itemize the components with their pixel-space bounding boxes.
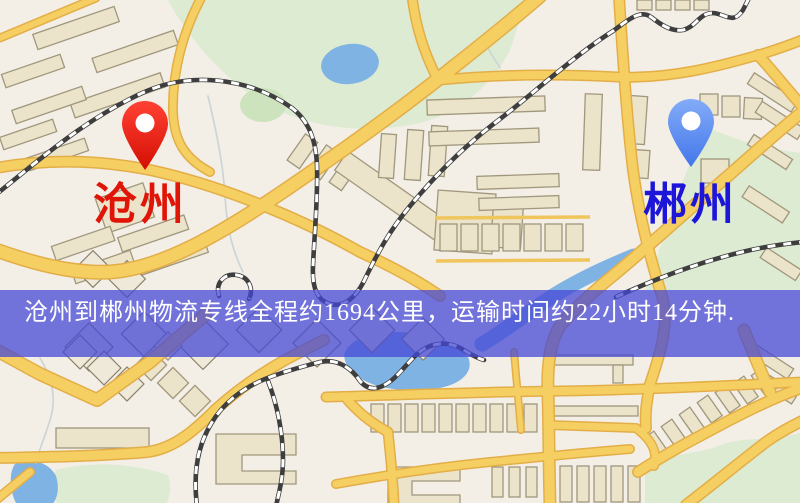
destination-city-label: 郴州 (643, 180, 737, 229)
route-info-banner: 沧州到郴州物流专线全程约1694公里，运输时间约22小时14分钟. (0, 290, 800, 357)
route-info-text: 沧州到郴州物流专线全程约1694公里，运输时间约22小时14分钟. (24, 299, 735, 328)
map-screenshot: 沧州 郴州 沧州到郴州物流专线全程约1694公里，运输时间约22小时14分钟. (0, 0, 800, 503)
red-pin-hole (136, 114, 155, 133)
origin-city-label: 沧州 (93, 180, 187, 229)
blue-pin-hole (682, 112, 701, 131)
map-canvas[interactable]: 沧州 郴州 (0, 0, 800, 503)
